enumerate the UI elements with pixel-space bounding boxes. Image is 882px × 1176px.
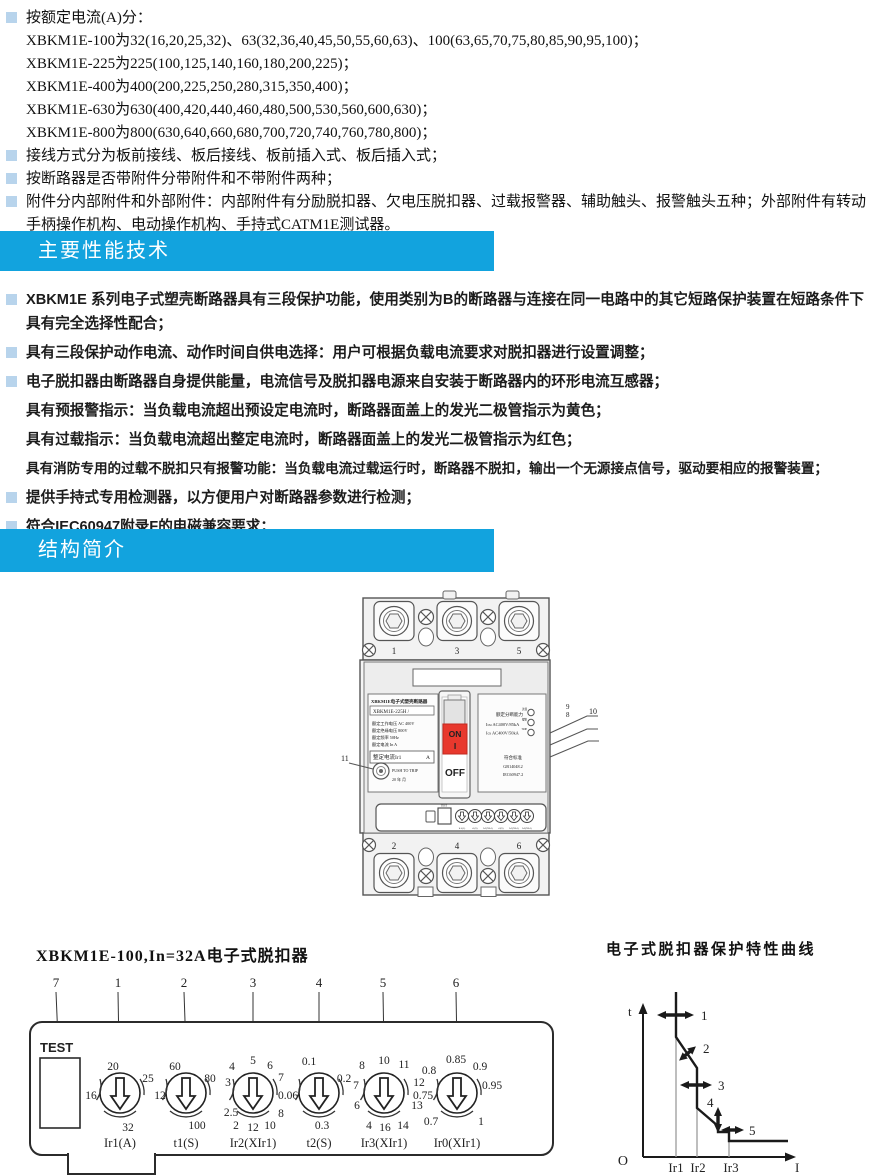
performance-list: XBKM1E 系列电子式塑壳断路器具有三段保护功能，使用类别为B的断路器与连接在… bbox=[6, 288, 864, 544]
led-indicator bbox=[528, 709, 534, 715]
trip-curve bbox=[676, 992, 788, 1141]
on-bar-label: I bbox=[454, 741, 456, 751]
dial-value: 0.9 bbox=[473, 1061, 488, 1073]
label-model: XBKM1E-225H / bbox=[373, 710, 410, 715]
pole-number: 2 bbox=[392, 841, 397, 851]
tick-ir1: Ir1 bbox=[668, 1160, 683, 1175]
adjust-arrow-4 bbox=[714, 1107, 722, 1133]
i-axis-label: I bbox=[795, 1160, 799, 1175]
push-to-trip-label: PUSH TO TRIP bbox=[392, 768, 419, 773]
breaker-diagram: 1 3 5 XBKM1E电子式塑壳断路器 XBKM1E-225H / 额定工作电… bbox=[330, 586, 620, 902]
strip-test-button bbox=[438, 808, 451, 824]
bullet-icon bbox=[6, 492, 17, 503]
tick-ir2: Ir2 bbox=[690, 1160, 705, 1175]
callout-number: 7 bbox=[53, 975, 60, 990]
setting-current: 整定电流Ir1 bbox=[373, 753, 402, 761]
dial-value: 5 bbox=[250, 1055, 256, 1067]
dial-strip: TEST Ir1(A) t1(S) Ir2(XIr1) t2(S) Ir3(XI… bbox=[376, 804, 546, 831]
off-label: OFF bbox=[445, 768, 465, 779]
label-line: 额定电流 In A bbox=[372, 741, 397, 748]
list-item: 电子脱扣器由断路器自身提供能量，电流信号及脱扣器电源来自安装于断路器内的环形电流… bbox=[6, 370, 864, 394]
dial-value: 16 bbox=[85, 1090, 97, 1102]
pole-number: 1 bbox=[392, 646, 397, 656]
breaking-capacity: 额定分断能力 bbox=[496, 711, 523, 718]
bullet-icon bbox=[6, 173, 17, 184]
callout-8: 8 bbox=[566, 711, 570, 719]
dial-value: 80 bbox=[204, 1073, 216, 1085]
dial-label: t2(S) bbox=[307, 1136, 332, 1150]
led-label: 报警 bbox=[522, 718, 528, 722]
bullet-icon bbox=[6, 376, 17, 387]
callout-10: 10 bbox=[589, 707, 597, 716]
dial-value: 11 bbox=[398, 1059, 409, 1071]
curve-callout: 1 bbox=[701, 1008, 708, 1023]
dial-value: 0.75 bbox=[413, 1090, 433, 1102]
dial-value: 32 bbox=[122, 1122, 134, 1134]
dial-value: 8 bbox=[278, 1108, 284, 1120]
list-item-text: XBKM1E-800为800(630,640,660,680,700,720,7… bbox=[26, 125, 436, 141]
wire bbox=[550, 741, 599, 757]
dial-value: 12 bbox=[154, 1090, 166, 1102]
list-item-text: 具有过载指示：当负载电流超出整定电流时，断路器面盖上的发光二极管指示为红色； bbox=[26, 432, 581, 448]
dial-value: 7 bbox=[278, 1072, 284, 1084]
callout-number: 3 bbox=[250, 975, 257, 990]
list-item: 具有消防专用的过载不脱扣只有报警功能：当负载电流过载运行时，断路器不脱扣，输出一… bbox=[6, 457, 864, 481]
list-item-text: 按额定电流(A)分： bbox=[26, 10, 152, 26]
dial-value: 0.3 bbox=[315, 1120, 330, 1132]
led-label: 过载 bbox=[522, 707, 528, 711]
callout-number: 6 bbox=[453, 975, 460, 990]
dial-value: 6 bbox=[354, 1100, 360, 1112]
dial-value: 60 bbox=[169, 1061, 181, 1073]
standard-gb: GB14048.2 bbox=[503, 764, 522, 769]
strip-dial-label: Ir1(A) bbox=[459, 827, 466, 830]
dial-value: 12 bbox=[247, 1122, 259, 1134]
icu-rating: Icu AC400V/85kA bbox=[486, 722, 520, 727]
dial-value: 0.85 bbox=[446, 1054, 466, 1066]
list-item-text: 按断路器是否带附件分带附件和不带附件两种； bbox=[26, 171, 341, 187]
label-title: XBKM1E电子式塑壳断路器 bbox=[371, 698, 428, 705]
list-item: XBKM1E-400为400(200,225,250,280,315,350,4… bbox=[6, 76, 870, 99]
tick-ir3: Ir3 bbox=[723, 1160, 738, 1175]
bullet-icon bbox=[6, 12, 17, 23]
curve-callout: 4 bbox=[707, 1095, 714, 1110]
curve-callout: 2 bbox=[703, 1041, 710, 1056]
list-item: 具有过载指示：当负载电流超出整定电流时，断路器面盖上的发光二极管指示为红色； bbox=[6, 428, 864, 452]
bullet-icon bbox=[6, 294, 17, 305]
list-item: XBKM1E-630为630(400,420,440,460,480,500,5… bbox=[6, 99, 870, 122]
curve-callout: 3 bbox=[718, 1078, 725, 1093]
strip-dial-label: t1(S) bbox=[473, 827, 478, 830]
strip-dial-label: Ir3(XIr1) bbox=[509, 827, 518, 830]
dial-value: 20 bbox=[107, 1061, 119, 1073]
list-item: XBKM1E-225为225(100,125,140,160,180,200,2… bbox=[6, 53, 870, 76]
pole-number: 6 bbox=[517, 841, 522, 851]
protection-curve: t I O bbox=[600, 985, 882, 1176]
bullet-icon bbox=[6, 347, 17, 358]
curve-adjust-arrows: 1 2 3 4 5 bbox=[657, 1008, 756, 1138]
list-item-text: XBKM1E-630为630(400,420,440,460,480,500,5… bbox=[26, 102, 436, 118]
curve-ticks: Ir1 Ir2 Ir3 bbox=[668, 1160, 738, 1175]
dial-value: 0.7 bbox=[424, 1116, 439, 1128]
callout-number: 1 bbox=[115, 975, 122, 990]
dial-value: 10 bbox=[264, 1120, 276, 1132]
ics-rating: Ics AC400V/50kA bbox=[486, 731, 520, 736]
test-button bbox=[40, 1058, 80, 1128]
wire bbox=[550, 716, 598, 733]
dial-value: 0.1 bbox=[302, 1056, 317, 1068]
panel-tab bbox=[68, 1153, 155, 1174]
spec-list: 按额定电流(A)分： XBKM1E-100为32(16,20,25,32)、63… bbox=[6, 7, 870, 237]
setting-unit: A bbox=[426, 755, 430, 761]
list-item-text: XBKM1E-100为32(16,20,25,32)、63(32,36,40,4… bbox=[26, 33, 648, 49]
led-indicator bbox=[528, 719, 534, 725]
strip-dial-label: Ir2(XIr1) bbox=[483, 827, 492, 830]
list-item-text: 具有消防专用的过载不脱扣只有报警功能：当负载电流过载运行时，断路器不脱扣，输出一… bbox=[26, 461, 828, 476]
callout-number: 5 bbox=[380, 975, 387, 990]
dial-label: Ir0(XIr1) bbox=[434, 1136, 481, 1150]
t-axis-label: t bbox=[628, 1004, 632, 1019]
trip-unit-title: XBKM1E-100,In=32A电子式脱扣器 bbox=[36, 942, 309, 966]
dial-value: 6 bbox=[267, 1060, 273, 1072]
origin-label: O bbox=[618, 1154, 628, 1169]
dial-value: 1 bbox=[478, 1116, 484, 1128]
date-label: 20 年 月 bbox=[392, 776, 406, 782]
led-label: TRIP bbox=[521, 728, 527, 731]
dial-value: 4 bbox=[229, 1061, 235, 1073]
callout-number: 2 bbox=[181, 975, 188, 990]
label-line: 额定工作电压 AC 400V bbox=[372, 720, 414, 727]
curve-callout: 5 bbox=[749, 1123, 756, 1138]
list-item-text: 具有三段保护动作电流、动作时间自供电选择：用户可根据负载电流要求对脱扣器进行设置… bbox=[26, 345, 654, 361]
dial-value: 10 bbox=[378, 1055, 390, 1067]
dial-value: 12 bbox=[413, 1077, 425, 1089]
list-item: 按断路器是否带附件分带附件和不带附件两种； bbox=[6, 168, 870, 191]
trip-unit-diagram: 7 1 2 3 4 5 6 TEST 20 25 16 32 Ir1(A) bbox=[20, 972, 570, 1176]
bullet-icon bbox=[6, 196, 17, 207]
dial-value: 0.2 bbox=[337, 1073, 352, 1085]
wire bbox=[550, 729, 598, 745]
callout-11: 11 bbox=[341, 754, 349, 763]
dial-value: 0.95 bbox=[482, 1080, 502, 1092]
dial-value: 100 bbox=[188, 1120, 206, 1132]
strip-dial-label: t2(S) bbox=[499, 827, 504, 830]
list-item-text: XBKM1E-400为400(200,225,250,280,315,350,4… bbox=[26, 79, 358, 95]
led-indicator bbox=[528, 729, 534, 735]
dial-label: Ir1(A) bbox=[104, 1136, 136, 1150]
list-item: 提供手持式专用检测器，以方便用户对断路器参数进行检测； bbox=[6, 486, 864, 510]
dial-label: t1(S) bbox=[174, 1136, 199, 1150]
list-item: XBKM1E 系列电子式塑壳断路器具有三段保护功能，使用类别为B的断路器与连接在… bbox=[6, 288, 864, 336]
section-header-text: 结构简介 bbox=[38, 539, 126, 561]
dial-value: 0.06 bbox=[278, 1090, 298, 1102]
dial-value: 25 bbox=[142, 1073, 154, 1085]
section-header-text: 主要性能技术 bbox=[38, 240, 170, 262]
list-item: 具有三段保护动作电流、动作时间自供电选择：用户可根据负载电流要求对脱扣器进行设置… bbox=[6, 341, 864, 365]
list-item: XBKM1E-800为800(630,640,660,680,700,720,7… bbox=[6, 122, 870, 145]
standard-label: 符合标准 bbox=[504, 754, 522, 761]
adjust-arrow-2 bbox=[677, 1043, 699, 1063]
standard-iec: IEC60947.2 bbox=[503, 772, 523, 777]
list-item-text: 提供手持式专用检测器，以方便用户对断路器参数进行检测； bbox=[26, 490, 420, 506]
dial-value: 7 bbox=[353, 1080, 359, 1092]
list-item: 具有预报警指示：当负载电流超出预设定电流时，断路器面盖上的发光二极管指示为黄色； bbox=[6, 399, 864, 423]
pole-number: 4 bbox=[455, 841, 460, 851]
section-header-performance: 主要性能技术 bbox=[0, 231, 494, 271]
dial-value: 0.8 bbox=[422, 1065, 437, 1077]
pole-number: 5 bbox=[517, 646, 522, 656]
test-label: TEST bbox=[40, 1040, 73, 1055]
list-item: 按额定电流(A)分： bbox=[6, 7, 870, 30]
dial-value: 2 bbox=[233, 1120, 239, 1132]
bullet-icon bbox=[6, 150, 17, 161]
list-item-text: 附件分内部附件和外部附件：内部附件有分励脱扣器、欠电压脱扣器、过载报警器、辅助触… bbox=[26, 194, 866, 233]
pole-number: 3 bbox=[455, 646, 460, 656]
list-item: 接线方式分为板前接线、板后接线、板前插入式、板后插入式； bbox=[6, 145, 870, 168]
strip-test-label: TEST bbox=[441, 805, 448, 808]
breaker-switch: ON I OFF bbox=[439, 691, 470, 798]
section-header-structure: 结构简介 bbox=[0, 529, 494, 572]
dial-value: 8 bbox=[359, 1060, 365, 1072]
list-item-text: XBKM1E 系列电子式塑壳断路器具有三段保护功能，使用类别为B的断路器与连接在… bbox=[26, 292, 864, 332]
dial-value: 2.5 bbox=[224, 1107, 239, 1119]
dial-value: 4 bbox=[366, 1120, 372, 1132]
dial-label: Ir3(XIr1) bbox=[361, 1136, 408, 1150]
list-item-text: 接线方式分为板前接线、板后接线、板前插入式、板后插入式； bbox=[26, 148, 446, 164]
dial-value: 16 bbox=[379, 1122, 391, 1134]
list-item-text: XBKM1E-225为225(100,125,140,160,180,200,2… bbox=[26, 56, 358, 72]
callout-9: 9 bbox=[566, 703, 570, 711]
list-item-text: 具有预报警指示：当负载电流超出预设定电流时，断路器面盖上的发光二极管指示为黄色； bbox=[26, 403, 610, 419]
curve-title: 电子式脱扣器保护特性曲线 bbox=[606, 938, 816, 959]
dial-label: Ir2(XIr1) bbox=[230, 1136, 277, 1150]
dial-value: 14 bbox=[397, 1120, 409, 1132]
on-label: ON bbox=[449, 729, 462, 739]
list-item-text: 电子脱扣器由断路器自身提供能量，电流信号及脱扣器电源来自安装于断路器内的环形电流… bbox=[26, 374, 668, 390]
callout-number: 4 bbox=[316, 975, 323, 990]
list-item: XBKM1E-100为32(16,20,25,32)、63(32,36,40,4… bbox=[6, 30, 870, 53]
dial-value: 3 bbox=[225, 1077, 231, 1089]
label-line: 额定绝缘电压 800V bbox=[372, 727, 407, 734]
curve-axes: t I O bbox=[618, 1003, 799, 1175]
label-line: 额定频率 50Hz bbox=[372, 734, 399, 741]
strip-dial-label: Ir0(XIr1) bbox=[522, 827, 531, 830]
